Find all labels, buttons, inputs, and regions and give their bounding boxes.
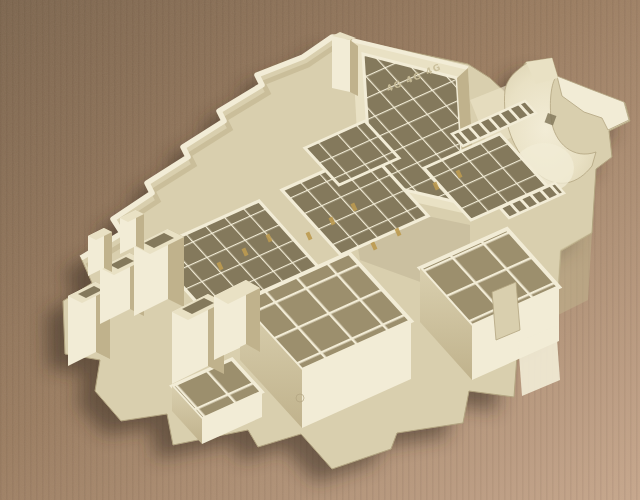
post-front — [332, 36, 350, 92]
connector-post-small — [88, 228, 112, 276]
connector-post-small — [120, 210, 144, 254]
post-side — [350, 40, 358, 96]
photo-fuse-box: 4G 4G 4G — [0, 0, 640, 500]
fuse-box-photo-canvas: 4G 4G 4G — [0, 0, 640, 500]
side-tab — [492, 282, 520, 340]
